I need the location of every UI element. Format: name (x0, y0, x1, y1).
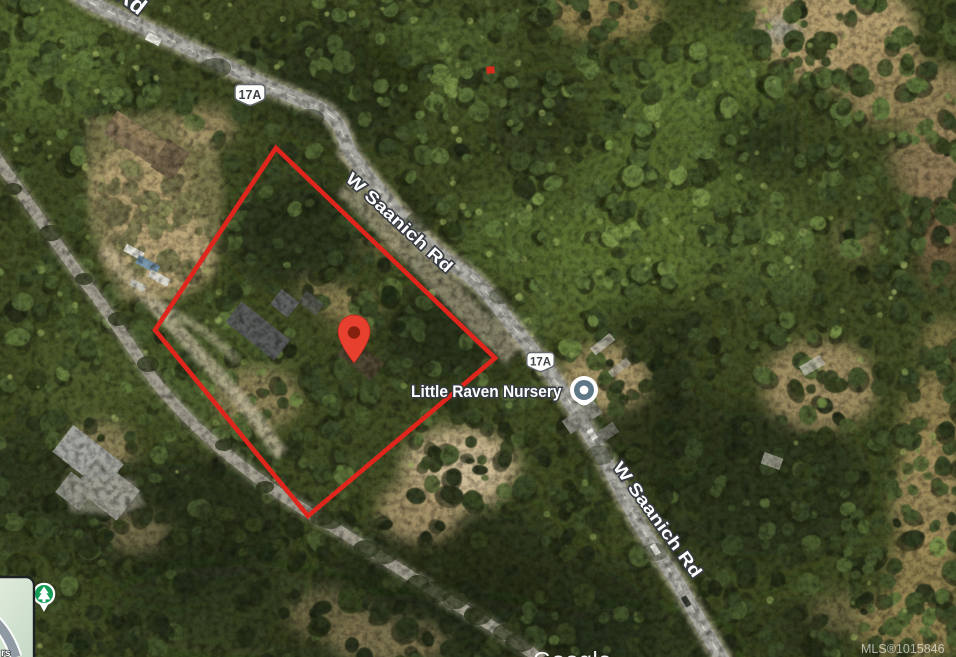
svg-text:17A: 17A (239, 88, 262, 102)
svg-text:rs: rs (1, 648, 11, 657)
svg-text:MLS®1015846: MLS®1015846 (861, 642, 945, 656)
svg-text:17A: 17A (530, 357, 551, 369)
svg-text:Little Raven Nursery: Little Raven Nursery (411, 382, 562, 401)
svg-text:Google: Google (533, 647, 612, 657)
